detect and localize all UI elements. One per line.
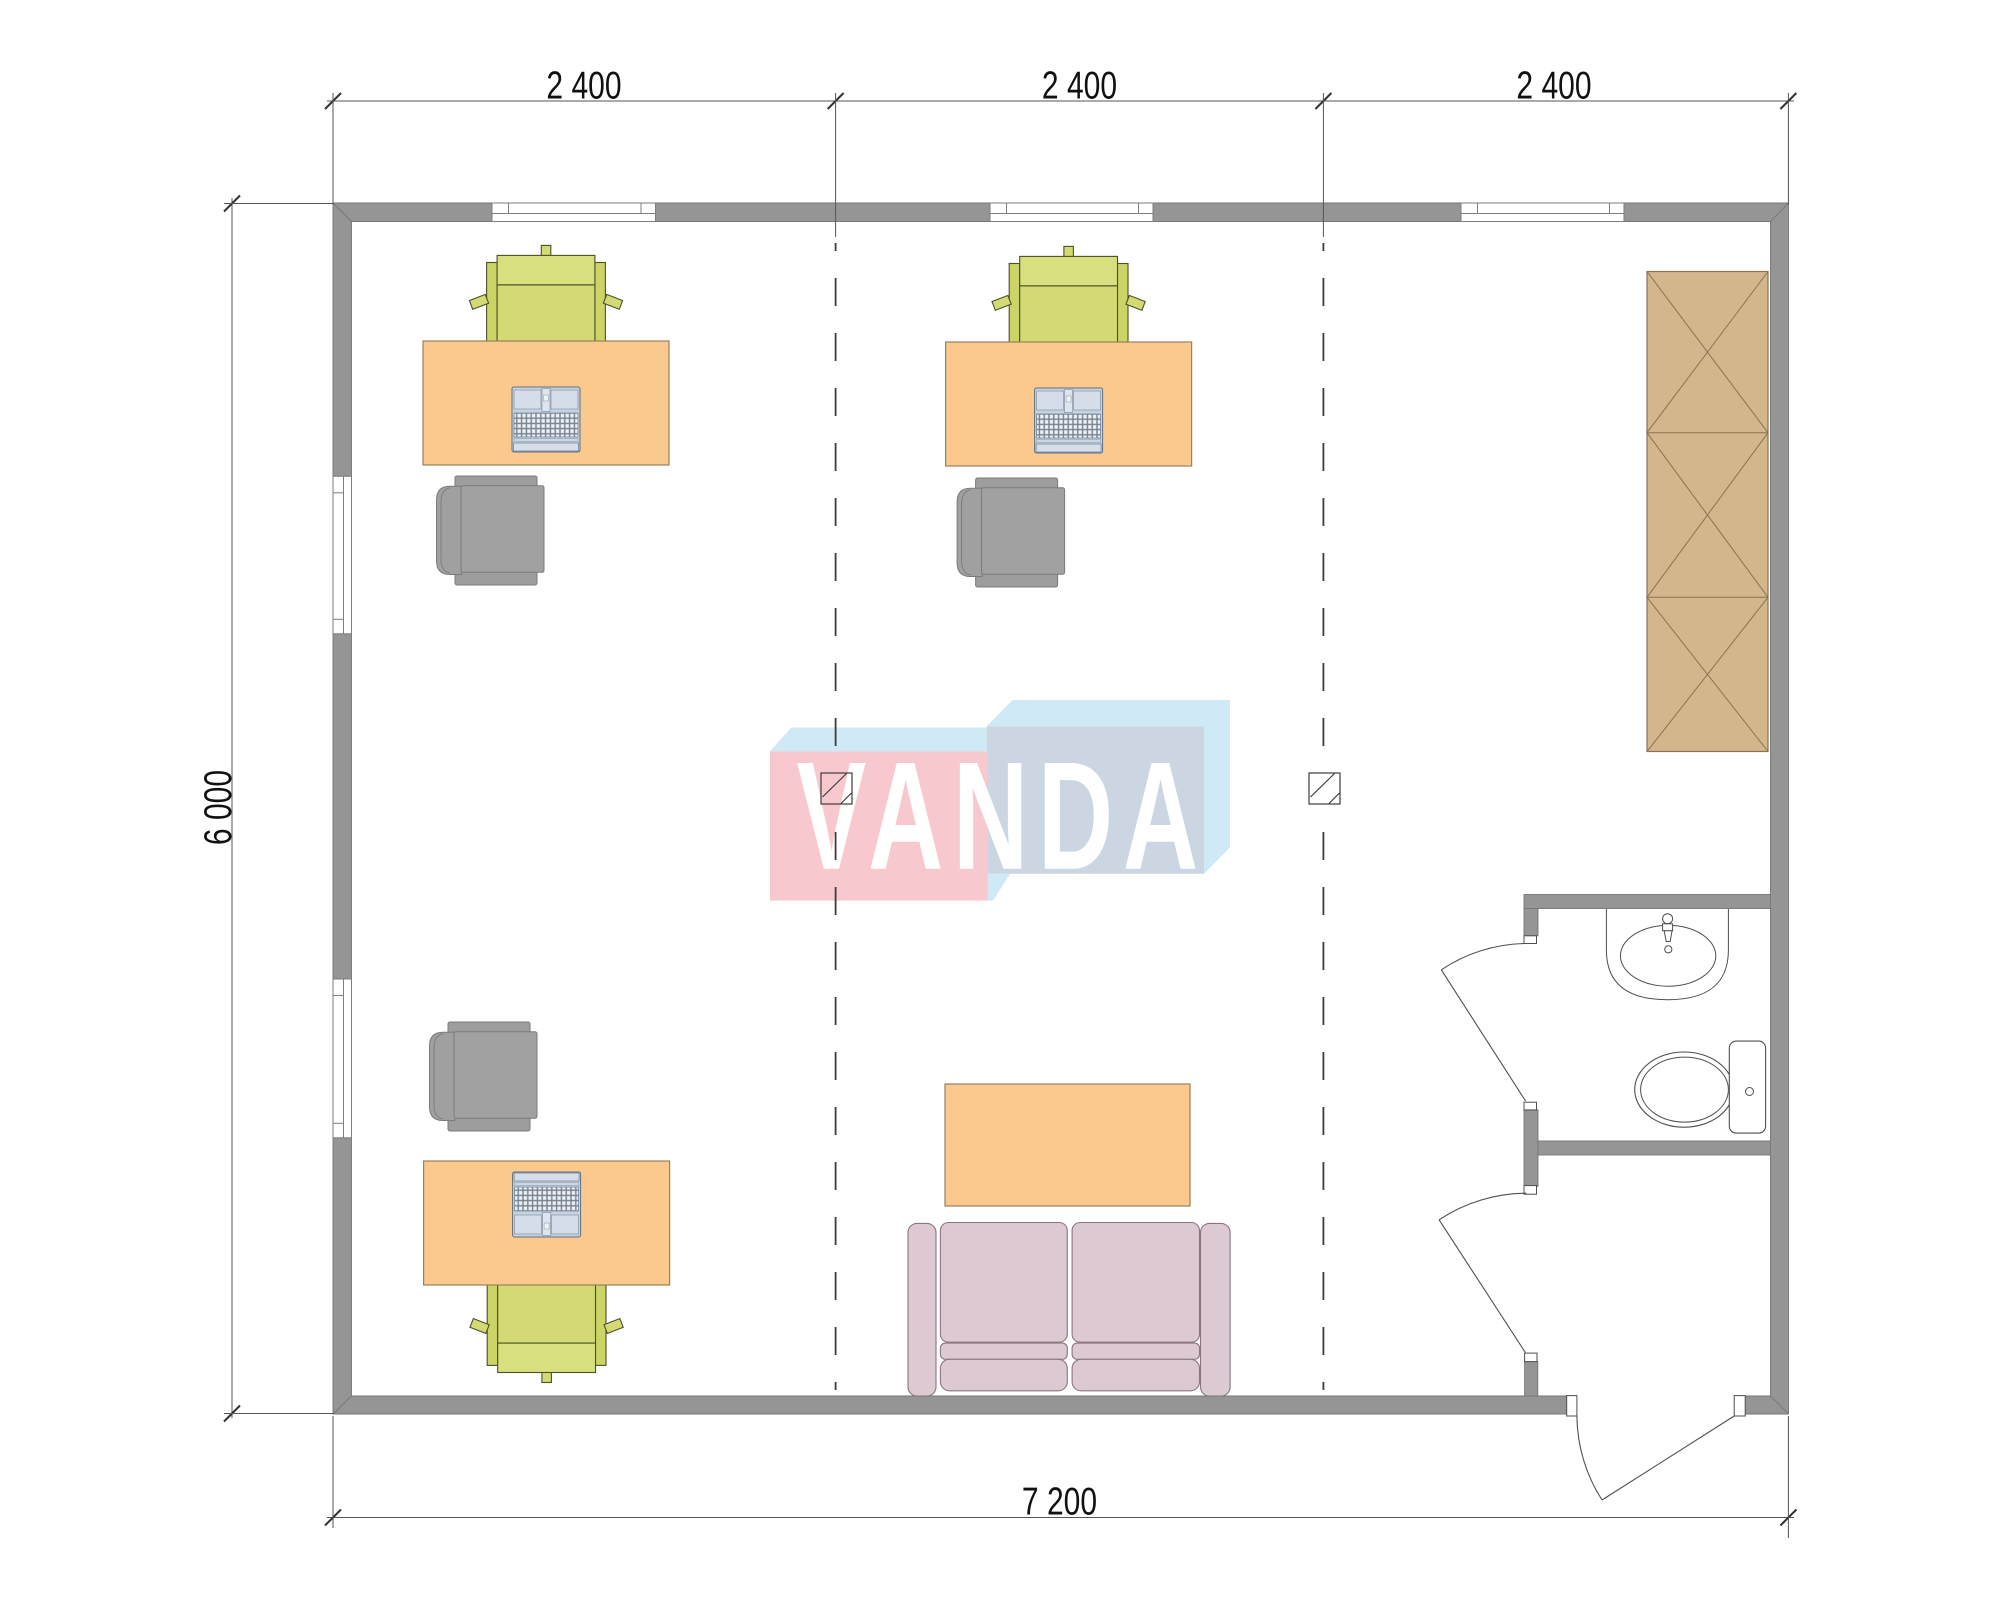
svg-text:2 400: 2 400 — [1516, 65, 1591, 107]
svg-text:7 200: 7 200 — [1022, 1481, 1097, 1523]
svg-text:6 000: 6 000 — [198, 770, 240, 845]
svg-text:VANDA: VANDA — [797, 730, 1208, 902]
svg-text:2 400: 2 400 — [1042, 65, 1117, 107]
svg-text:2 400: 2 400 — [546, 65, 621, 107]
